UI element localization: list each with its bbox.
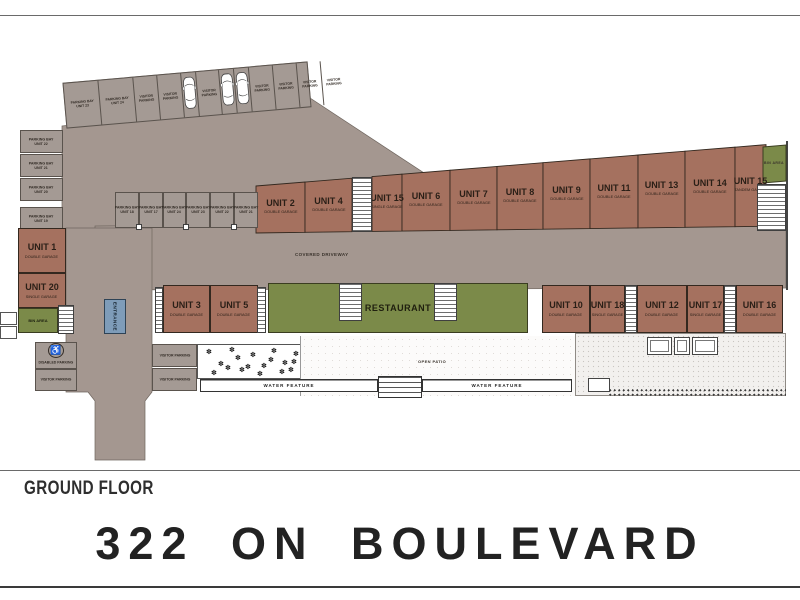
unit-garage: UNIT 10DOUBLE GARAGE xyxy=(542,285,590,333)
gate-box xyxy=(0,312,17,325)
gate-post xyxy=(136,224,142,230)
unit-garage: UNIT 3DOUBLE GARAGE xyxy=(163,285,210,333)
covered-driveway-label: COVERED DRIVEWAY xyxy=(295,252,349,257)
unit-label: UNIT 11DOUBLE GARAGE xyxy=(586,184,642,199)
paving-strip xyxy=(608,388,786,397)
shrub-icon: ✽ xyxy=(291,359,297,366)
bin-area-label: BIN AREA xyxy=(28,318,47,323)
restaurant-area: RESTAURANT xyxy=(268,283,528,333)
shrub-icon: ✽ xyxy=(268,357,274,364)
restaurant-label: RESTAURANT xyxy=(365,303,431,313)
disabled-parking-label: DISABLED PARKING xyxy=(39,361,74,365)
parking-bay-label: PARKING BAYUNIT 20 xyxy=(29,185,54,194)
unit-garage: UNIT 20SINGLE GARAGE xyxy=(18,273,66,308)
utility-room xyxy=(692,337,718,355)
bin-area-label: BIN AREA xyxy=(764,161,784,165)
visitor-parking-bay: VISITOR PARKING xyxy=(152,368,197,391)
unit-label: UNIT 7DOUBLE GARAGE xyxy=(446,190,502,205)
shrub-icon: ✽ xyxy=(271,348,277,355)
visitor-parking-label: VISITOR PARKING xyxy=(41,378,72,382)
stairwell xyxy=(58,305,74,334)
visitor-parking-bay: VISITOR PARKING xyxy=(152,344,197,367)
visitor-parking-label: VISITOR PARKING xyxy=(159,377,190,381)
parking-bay-label: PARKING BAYUNIT 19 xyxy=(29,214,54,223)
parking-bay: PARKING BAYUNIT 24 xyxy=(163,192,187,228)
stairwell xyxy=(625,285,637,333)
plan-layer: PARKING BAYUNIT 22PARKING BAYUNIT 21PARK… xyxy=(0,0,800,470)
unit-garage: UNIT 5DOUBLE GARAGE xyxy=(210,285,258,333)
gate-post xyxy=(183,224,189,230)
shrub-icon: ✽ xyxy=(261,363,267,370)
section-divider-line xyxy=(0,470,800,471)
unit-garage: UNIT 17SINGLE GARAGE xyxy=(687,285,724,333)
parking-bay: PARKING BAYUNIT 21 xyxy=(20,154,63,177)
parking-bay-label: PARKING BAYUNIT 24 xyxy=(162,206,187,215)
parking-bay-label: PARKING BAYUNIT 17 xyxy=(138,206,163,215)
parking-bay: PARKING BAYUNIT 22 xyxy=(210,192,234,228)
water-feature-label: WATER FEATURE xyxy=(263,383,314,388)
parking-bay: PARKING BAYUNIT 23 xyxy=(186,192,210,228)
water-feature-steps xyxy=(378,376,422,398)
parking-bay: PARKING BAYUNIT 19 xyxy=(20,207,63,230)
unit-label: UNIT 14DOUBLE GARAGE xyxy=(682,179,738,194)
shrub-bed: ✽✽✽✽✽✽✽✽✽✽✽✽✽✽✽✽✽✽ xyxy=(197,344,303,379)
shrub-icon: ✽ xyxy=(218,361,224,368)
stairwell xyxy=(155,287,163,333)
stairwell xyxy=(257,287,266,333)
shrub-icon: ✽ xyxy=(279,369,285,376)
visitor-parking-label: VISITOR PARKING xyxy=(159,353,190,357)
shrub-icon: ✽ xyxy=(239,367,245,374)
entrance-label: ENTRANCE xyxy=(113,302,118,331)
shrub-icon: ✽ xyxy=(225,365,231,372)
shrub-icon: ✽ xyxy=(235,355,241,362)
bin-area: BIN AREA xyxy=(18,308,58,333)
unit-label: UNIT 6DOUBLE GARAGE xyxy=(398,192,454,207)
shrub-icon: ✽ xyxy=(282,360,288,367)
parking-bay: PARKING BAYUNIT 22 xyxy=(20,130,63,153)
shrub-icon: ✽ xyxy=(293,351,299,358)
water-feature-label: WATER FEATURE xyxy=(471,383,522,388)
parking-bay-label: PARKING BAYUNIT 23 xyxy=(186,206,211,215)
unit-label: UNIT 9DOUBLE GARAGE xyxy=(539,186,595,201)
project-title: 322 ON BOULEVARD xyxy=(0,518,800,570)
disabled-parking-bay: ♿ DISABLED PARKING xyxy=(35,342,77,369)
utility-room xyxy=(647,337,672,355)
parking-bay: PARKING BAYUNIT 18 xyxy=(115,192,139,228)
parking-bay: PARKING BAYUNIT 21 xyxy=(234,192,258,228)
stairwell xyxy=(434,283,457,321)
entrance-marker: ENTRANCE xyxy=(104,299,126,334)
visitor-parking-bay: VISITOR PARKING xyxy=(35,369,77,391)
parking-bay-label: PARKING BAYUNIT 21 xyxy=(234,206,259,215)
unit-garage: UNIT 12DOUBLE GARAGE xyxy=(637,285,687,333)
shrub-icon: ✽ xyxy=(288,367,294,374)
parking-bay-label: PARKING BAYUNIT 22 xyxy=(210,206,235,215)
parking-bay-label: PARKING BAYUNIT 21 xyxy=(29,161,54,170)
unit-garage: UNIT 18SINGLE GARAGE xyxy=(590,285,625,333)
parking-bay: PARKING BAYUNIT 20 xyxy=(20,178,63,201)
shrub-icon: ✽ xyxy=(229,347,235,354)
utility-room xyxy=(674,337,690,355)
stairwell xyxy=(352,177,372,232)
unit-garage: UNIT 1DOUBLE GARAGE xyxy=(18,228,66,273)
unit-label: UNIT 13DOUBLE GARAGE xyxy=(634,181,690,196)
wheelchair-icon: ♿ xyxy=(48,343,64,358)
unit-label: UNIT 4DOUBLE GARAGE xyxy=(301,197,357,212)
open-patio-label: OPEN PATIO xyxy=(418,359,446,364)
shrub-icon: ✽ xyxy=(206,349,212,356)
floor-plan-page: PARKING BAYUNIT 23PARKING BAYUNIT 24VISI… xyxy=(0,0,800,600)
parking-bay-label: PARKING BAYUNIT 18 xyxy=(115,206,140,215)
stairwell xyxy=(339,283,362,321)
bottom-border-line xyxy=(0,586,800,588)
unit-label: UNIT 2DOUBLE GARAGE xyxy=(253,199,309,214)
gate-box xyxy=(0,326,17,339)
stairwell xyxy=(724,285,736,333)
utility-room xyxy=(588,378,610,392)
parking-bay-label: PARKING BAYUNIT 22 xyxy=(29,137,54,146)
floor-label: GROUND FLOOR xyxy=(24,478,154,500)
stairwell xyxy=(757,184,786,231)
gate-post xyxy=(231,224,237,230)
unit-garage: UNIT 16DOUBLE GARAGE xyxy=(736,285,783,333)
shrub-icon: ✽ xyxy=(211,370,217,377)
shrub-icon: ✽ xyxy=(257,371,263,378)
water-feature: WATER FEATURE xyxy=(422,379,572,392)
shrub-icon: ✽ xyxy=(250,352,256,359)
water-feature: WATER FEATURE xyxy=(200,379,378,392)
shrub-icon: ✽ xyxy=(245,364,251,371)
parking-bay: PARKING BAYUNIT 17 xyxy=(139,192,163,228)
unit-label: UNIT 8DOUBLE GARAGE xyxy=(492,188,548,203)
